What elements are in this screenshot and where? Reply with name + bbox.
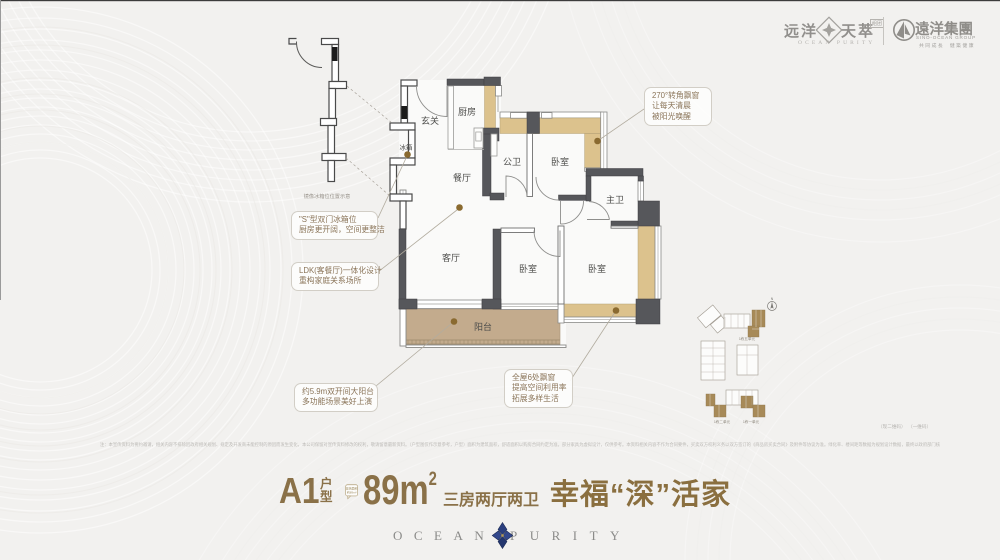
svg-text:镜像冰箱位位置示意: 镜像冰箱位位置示意	[304, 192, 351, 200]
svg-text:1栋五单元: 1栋五单元	[739, 336, 756, 341]
svg-text:冰箱: 冰箱	[400, 143, 414, 152]
svg-text:公卫: 公卫	[503, 157, 521, 167]
svg-text:卧室: 卧室	[519, 263, 537, 274]
svg-text:卧室: 卧室	[588, 263, 606, 274]
svg-text:卧室: 卧室	[551, 156, 569, 167]
svg-text:客厅: 客厅	[442, 252, 460, 263]
svg-text:主卫: 主卫	[606, 194, 624, 205]
svg-text:N: N	[771, 297, 774, 301]
svg-text:玄关: 玄关	[421, 115, 439, 126]
svg-text:1栋一单元: 1栋一单元	[743, 419, 760, 424]
svg-text:厨房: 厨房	[458, 106, 476, 117]
svg-text:阳台: 阳台	[474, 321, 492, 332]
svg-text:约89m²: 约89m²	[347, 490, 357, 495]
svg-text:餐厅: 餐厅	[453, 172, 471, 183]
svg-text:1栋二单元: 1栋二单元	[714, 419, 731, 424]
